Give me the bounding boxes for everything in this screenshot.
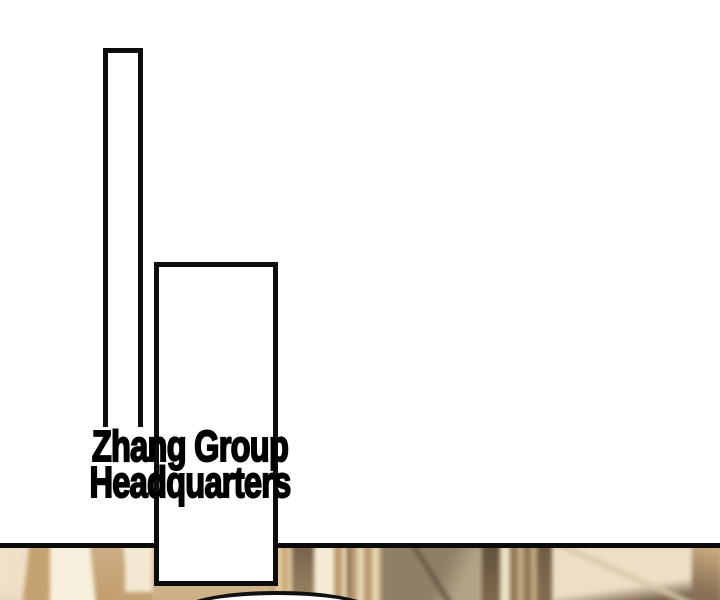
comic-page: Zhang Group Headquarters: [0, 0, 720, 600]
marble-floor: [0, 543, 720, 600]
marble-streak: [50, 543, 96, 600]
caption-line-2: Headquarters: [89, 465, 290, 501]
panel-bottom-lobby: [0, 543, 720, 600]
marble-streak: [510, 543, 540, 600]
marble-streak: [334, 543, 386, 600]
marble-streak: [347, 543, 350, 600]
marble-streak: [314, 543, 336, 600]
marble-streak: [482, 543, 502, 600]
marble-streak: [692, 543, 720, 600]
building-tower-left: [103, 48, 143, 427]
caption: Zhang Group Headquarters: [89, 429, 290, 501]
marble-light-tile: [552, 543, 704, 600]
marble-tile-seam: [382, 543, 486, 600]
